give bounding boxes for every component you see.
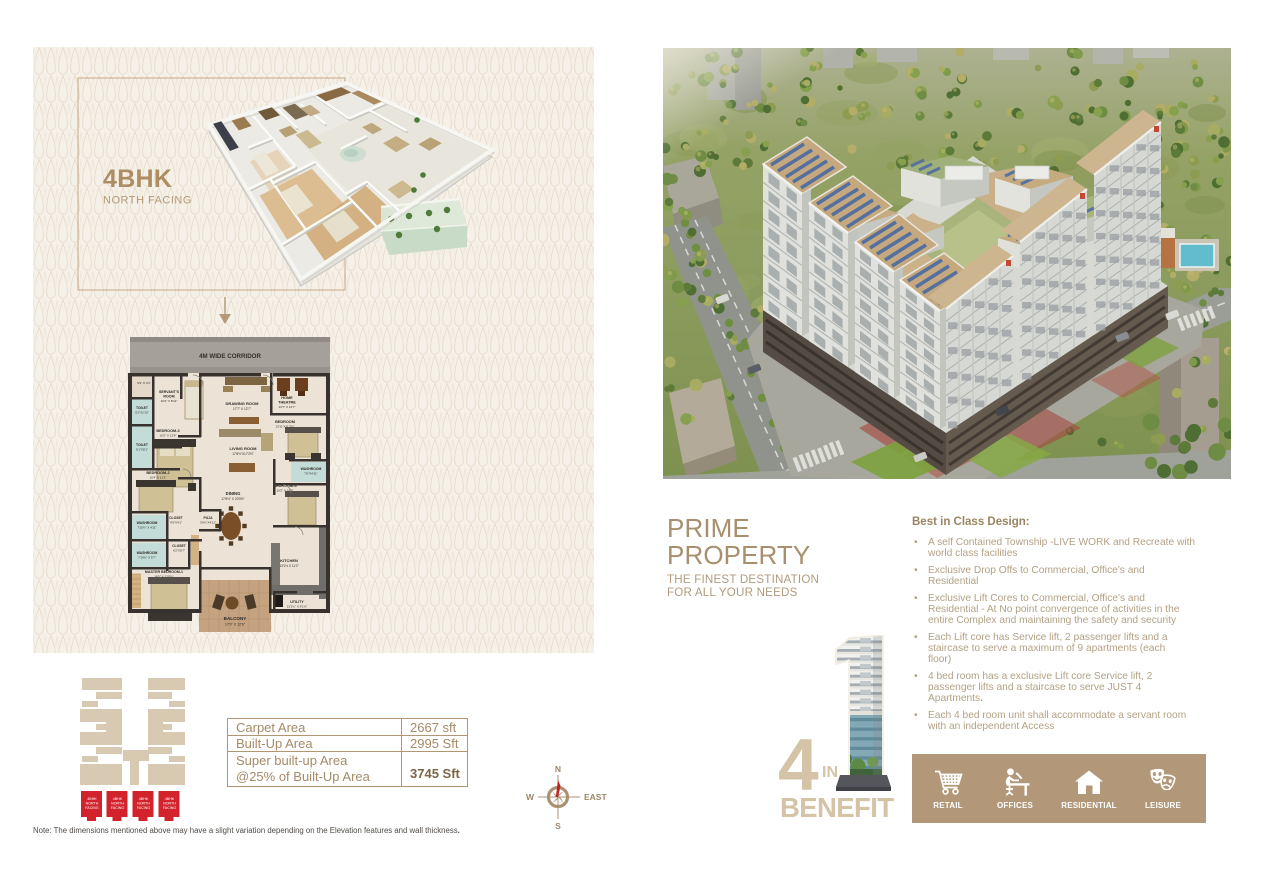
svg-text:BEDROOM-2: BEDROOM-2 (146, 471, 169, 475)
svg-text:LIVING ROOM: LIVING ROOM (230, 446, 258, 451)
svg-text:13'7" X 12'7": 13'7" X 12'7" (279, 405, 296, 409)
svg-text:EAST: EAST (584, 792, 607, 802)
svg-text:5'1"X5'1": 5'1"X5'1" (136, 447, 148, 451)
svg-text:10'2" X 8'11": 10'2" X 8'11" (161, 399, 178, 403)
svg-text:FACING: FACING (111, 806, 125, 810)
svg-text:3'6½"X4'11": 3'6½"X4'11" (200, 520, 216, 524)
svg-text:6'2"X5'7": 6'2"X5'7" (173, 548, 185, 552)
svg-text:9'3" X 4'1": 9'3" X 4'1" (137, 381, 151, 385)
svg-text:BEDROOM: BEDROOM (275, 420, 295, 424)
svg-text:NORTH: NORTH (86, 801, 99, 805)
svg-text:17'9" X 12'6": 17'9" X 12'6" (225, 623, 246, 627)
svg-text:17'6½" X 20'5½": 17'6½" X 20'5½" (221, 497, 244, 501)
svg-text:5'1"X2'10": 5'1"X2'10" (135, 410, 149, 414)
svg-text:NORTH: NORTH (137, 801, 150, 805)
svg-text:TOILET: TOILET (136, 406, 149, 410)
svg-text:HOME: HOME (281, 396, 293, 400)
svg-text:MASTER BEDROOM-1: MASTER BEDROOM-1 (145, 570, 183, 574)
svg-text:THEATRE: THEATRE (278, 401, 296, 405)
svg-text:BEDROOM-3: BEDROOM-3 (156, 429, 179, 433)
svg-text:13'1½ X 11'0": 13'1½ X 11'0" (279, 564, 298, 568)
svg-text:FACING: FACING (137, 806, 151, 810)
svg-text:WASHROOM: WASHROOM (137, 521, 158, 525)
svg-text:7'0"X4'11": 7'0"X4'11" (304, 471, 317, 475)
svg-text:NORTH FACING: NORTH FACING (103, 195, 192, 207)
svg-text:17'7" X 12'7": 17'7" X 12'7" (233, 407, 251, 411)
svg-text:SERVANT'S: SERVANT'S (159, 390, 180, 394)
svg-text:DINING: DINING (226, 491, 241, 496)
svg-text:4'9"X4'1": 4'9"X4'1" (170, 520, 182, 524)
svg-text:4BHK: 4BHK (103, 165, 172, 193)
svg-text:7'10½" X 4'11": 7'10½" X 4'11" (137, 525, 156, 529)
svg-text:TOILET: TOILET (136, 443, 149, 447)
svg-text:FACING: FACING (163, 806, 177, 810)
svg-text:W: W (526, 792, 535, 802)
svg-text:4BHK: 4BHK (113, 797, 123, 801)
svg-text:WASHROOM: WASHROOM (137, 551, 158, 555)
svg-text:ROOM: ROOM (163, 394, 174, 398)
svg-text:17'6½"X17'2½": 17'6½"X17'2½" (232, 452, 254, 456)
svg-text:UTILITY: UTILITY (290, 600, 304, 604)
svg-text:CLOSET: CLOSET (172, 544, 187, 548)
svg-text:FACING: FACING (85, 806, 99, 810)
svg-text:N: N (555, 764, 561, 774)
svg-text:10'4" X 11'2": 10'4" X 11'2" (150, 476, 167, 480)
svg-text:NORTH: NORTH (111, 801, 124, 805)
svg-text:CLOSET: CLOSET (169, 516, 184, 520)
svg-text:7'10½" X 5'7": 7'10½" X 5'7" (138, 555, 156, 559)
svg-text:WASHROOM: WASHROOM (301, 467, 322, 471)
svg-text:4M WIDE CORRIDOR: 4M WIDE CORRIDOR (199, 353, 261, 360)
svg-text:BALCONY: BALCONY (224, 616, 247, 621)
svg-text:13'1½" X 3'1½": 13'1½" X 3'1½" (287, 604, 307, 608)
svg-text:NORTH: NORTH (163, 801, 176, 805)
svg-text:10'2" X 12'6": 10'2" X 12'6" (160, 434, 177, 438)
svg-text:DRAWING ROOM: DRAWING ROOM (226, 401, 260, 406)
svg-text:4BHK: 4BHK (87, 797, 97, 801)
svg-text:S: S (555, 821, 561, 830)
svg-text:PUJA: PUJA (203, 516, 213, 520)
svg-text:4BHK: 4BHK (165, 797, 175, 801)
svg-text:KITCHEN: KITCHEN (280, 558, 298, 563)
svg-text:4BHK: 4BHK (139, 797, 149, 801)
